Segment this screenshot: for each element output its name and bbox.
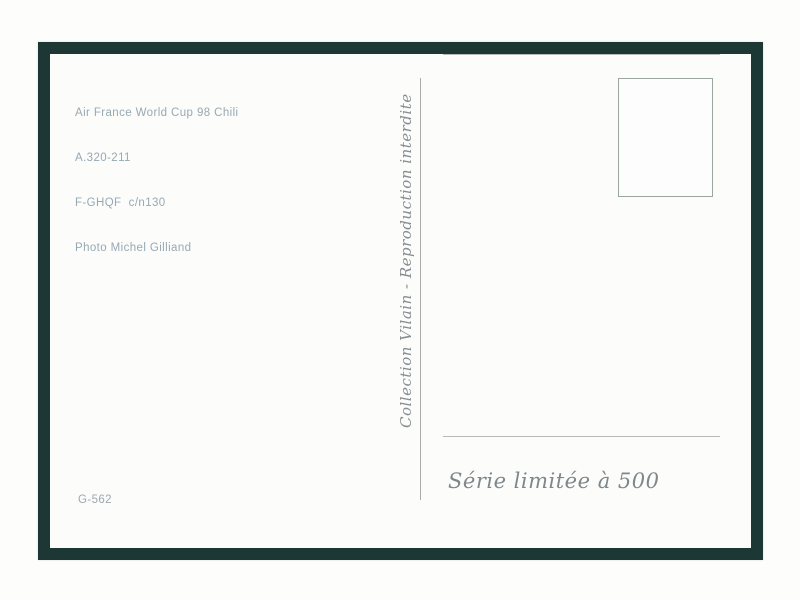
address-line — [443, 436, 720, 437]
scan-background: Air France World Cup 98 Chili A.320-211 … — [0, 0, 800, 600]
caption-line-photo-credit: Photo Michel Gilliand — [75, 241, 239, 256]
center-divider-line — [420, 78, 421, 500]
caption-line-title: Air France World Cup 98 Chili — [75, 106, 239, 121]
caption-line-registration: F-GHQF c/n130 — [75, 196, 239, 211]
limited-edition-text: Série limitée à 500 — [448, 469, 659, 493]
stamp-box — [618, 78, 713, 197]
collection-credit-rotated-text: Collection Vilain - Reproduction interdi… — [397, 138, 417, 428]
caption-block: Air France World Cup 98 Chili A.320-211 … — [75, 76, 239, 286]
postcard-back: Air France World Cup 98 Chili A.320-211 … — [38, 42, 763, 560]
reference-number: G-562 — [78, 494, 112, 506]
caption-line-aircraft-type: A.320-211 — [75, 151, 239, 166]
postcard-inner: Air France World Cup 98 Chili A.320-211 … — [50, 54, 751, 548]
address-line — [443, 54, 720, 55]
